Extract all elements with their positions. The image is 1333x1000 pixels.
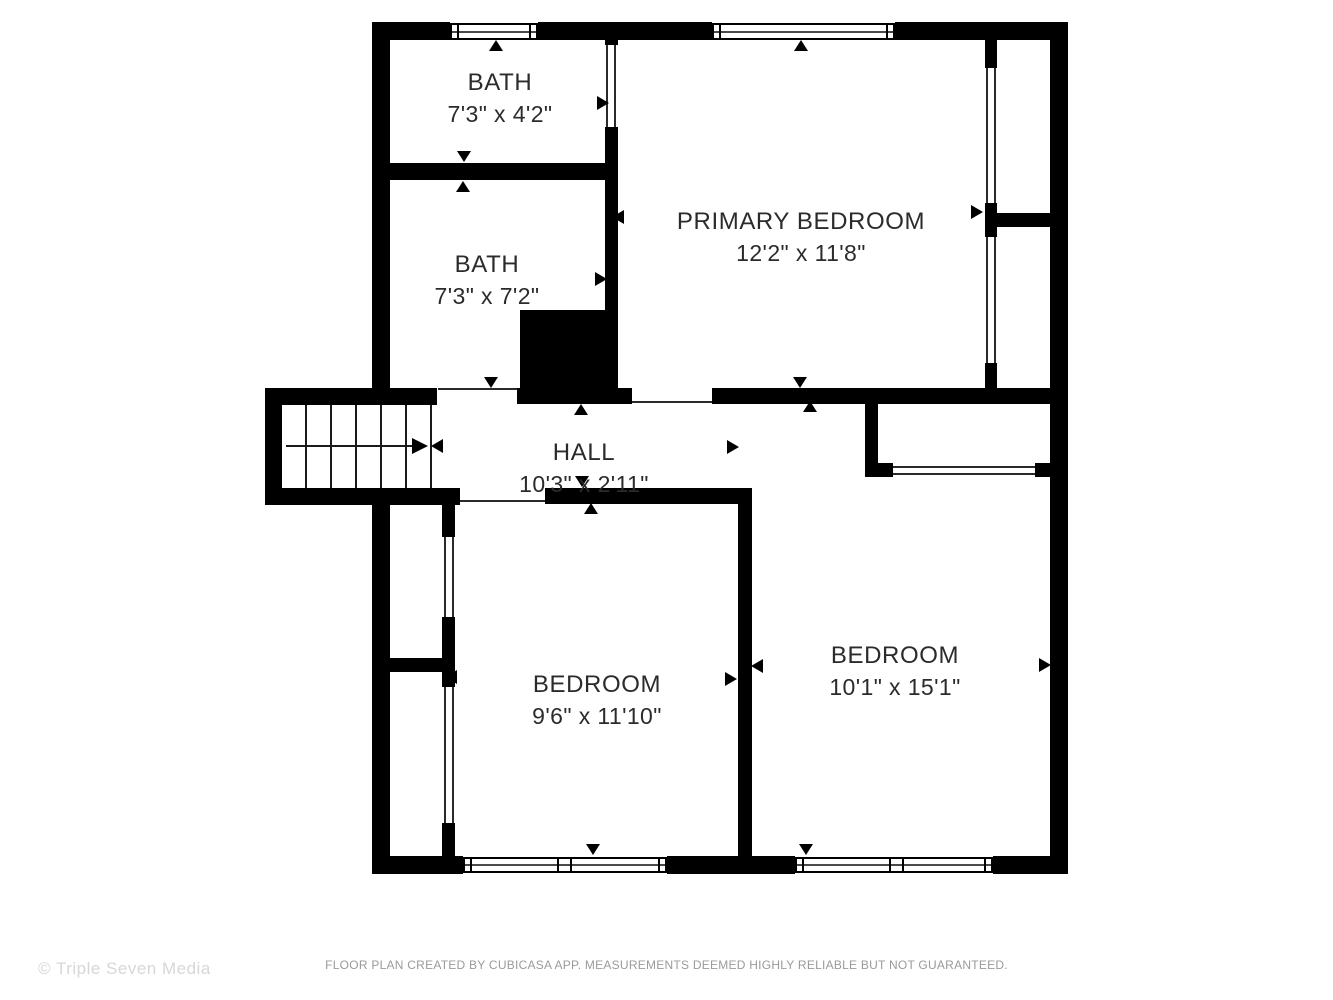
window-divider <box>902 859 904 871</box>
window <box>450 23 538 40</box>
wall-bath-divider <box>372 163 618 180</box>
wall-top <box>895 22 1068 40</box>
dimension-arrow <box>612 210 624 224</box>
dimension-arrow <box>597 96 609 110</box>
wall-closet <box>1035 463 1050 477</box>
sliding-door-line <box>994 237 996 363</box>
room-label-hall: HALL 10'3" x 2'11" <box>519 439 649 498</box>
dimension-arrow <box>793 377 807 388</box>
room-name: BEDROOM <box>532 671 662 699</box>
wall-bottom <box>667 856 795 874</box>
dimension-arrow <box>445 670 457 684</box>
sliding-door-line <box>452 687 454 823</box>
dimension-arrow <box>799 844 813 855</box>
wall-closet <box>865 403 878 477</box>
door-threshold-line <box>438 388 517 390</box>
stairs-direction-arrow <box>412 438 428 454</box>
stairs-direction-line <box>286 445 412 447</box>
room-label-bath1: BATH 7'3" x 4'2" <box>448 69 553 128</box>
room-label-bath2: BATH 7'3" x 7'2" <box>435 251 540 310</box>
window-pane-line <box>465 864 665 866</box>
room-dimensions: 10'1" x 15'1" <box>829 674 960 701</box>
dimension-arrow <box>586 844 600 855</box>
sliding-door-line <box>893 466 1035 468</box>
wall-closet <box>985 40 997 68</box>
wall-stairs-bottom <box>265 488 460 505</box>
wall-right <box>1050 22 1068 874</box>
wall-left <box>372 22 390 405</box>
window-cap <box>470 859 472 871</box>
dimension-arrow <box>376 277 388 291</box>
sliding-door-line <box>986 68 988 203</box>
window-double <box>795 857 993 873</box>
door-line <box>614 45 616 127</box>
wall-closet <box>442 497 455 537</box>
wall-closet <box>878 463 893 477</box>
room-dimensions: 7'3" x 4'2" <box>448 101 553 128</box>
wall-left <box>372 488 390 874</box>
window-divider <box>557 859 559 871</box>
door-opening-arrow <box>431 439 443 453</box>
window-cap <box>658 859 660 871</box>
dimension-arrow <box>595 272 607 286</box>
wall-bottom <box>993 856 1068 874</box>
wall-closet <box>985 203 997 237</box>
window-cap <box>886 25 888 38</box>
sliding-door-line <box>893 473 1035 475</box>
wall-top <box>538 22 712 40</box>
window-cap <box>529 25 531 38</box>
wall-closet <box>985 363 997 390</box>
dimension-arrow <box>794 40 808 51</box>
sliding-door-line <box>444 687 446 823</box>
window-cap <box>719 25 721 38</box>
watermark: © Triple Seven Media <box>38 959 211 979</box>
room-dimensions: 12'2" x 11'8" <box>677 240 925 267</box>
room-name: HALL <box>519 439 649 467</box>
dimension-arrow <box>456 181 470 192</box>
wall-bedroom-divider <box>738 490 752 856</box>
wall-segment <box>605 38 618 45</box>
wall-closet-divider <box>997 213 1050 227</box>
room-label-primary-bedroom: PRIMARY BEDROOM 12'2" x 11'8" <box>677 208 925 267</box>
room-name: BATH <box>435 251 540 279</box>
window-cap <box>457 25 459 38</box>
door-line <box>606 45 608 127</box>
dimension-arrow <box>489 40 503 51</box>
window-double <box>463 857 667 873</box>
door-threshold-line <box>460 500 545 502</box>
floor-plan: BATH 7'3" x 4'2" BATH 7'3" x 7'2" PRIMAR… <box>0 0 1333 1000</box>
dimension-arrow <box>803 401 817 412</box>
dimension-arrow <box>971 205 983 219</box>
disclaimer-text: FLOOR PLAN CREATED BY CUBICASA APP. MEAS… <box>325 958 1008 972</box>
window-divider <box>889 859 891 871</box>
window-pane-line <box>797 864 991 866</box>
room-name: BEDROOM <box>829 642 960 670</box>
door-threshold-line <box>632 401 712 403</box>
dimension-arrow <box>751 659 763 673</box>
sliding-door-line <box>986 237 988 363</box>
sliding-door-line <box>444 537 446 617</box>
dimension-arrow <box>574 404 588 415</box>
room-label-bedroom-left: BEDROOM 9'6" x 11'10" <box>532 671 662 730</box>
window-cap <box>984 859 986 871</box>
window-cap <box>802 859 804 871</box>
dimension-arrow <box>725 672 737 686</box>
room-name: BATH <box>448 69 553 97</box>
sliding-door-line <box>994 68 996 203</box>
room-dimensions: 9'6" x 11'10" <box>532 703 662 730</box>
room-name: PRIMARY BEDROOM <box>677 208 925 236</box>
wall-stairs-top <box>265 388 437 405</box>
wall-closet <box>442 823 455 856</box>
wall-hall-top <box>517 388 632 404</box>
dimension-arrow <box>484 377 498 388</box>
window-pane-line <box>714 31 893 33</box>
room-dimensions: 10'3" x 2'11" <box>519 471 649 498</box>
window-pane-line <box>452 31 536 33</box>
dimension-arrow <box>376 96 388 110</box>
dimension-arrow <box>584 503 598 514</box>
room-label-bedroom-right: BEDROOM 10'1" x 15'1" <box>829 642 960 701</box>
dimension-arrow <box>727 440 739 454</box>
dimension-arrow <box>1039 658 1051 672</box>
dimension-arrow <box>457 151 471 162</box>
sliding-door-line <box>452 537 454 617</box>
window <box>712 23 895 40</box>
room-dimensions: 7'3" x 7'2" <box>435 283 540 310</box>
window-divider <box>570 859 572 871</box>
wall-hall-top <box>712 388 1068 404</box>
